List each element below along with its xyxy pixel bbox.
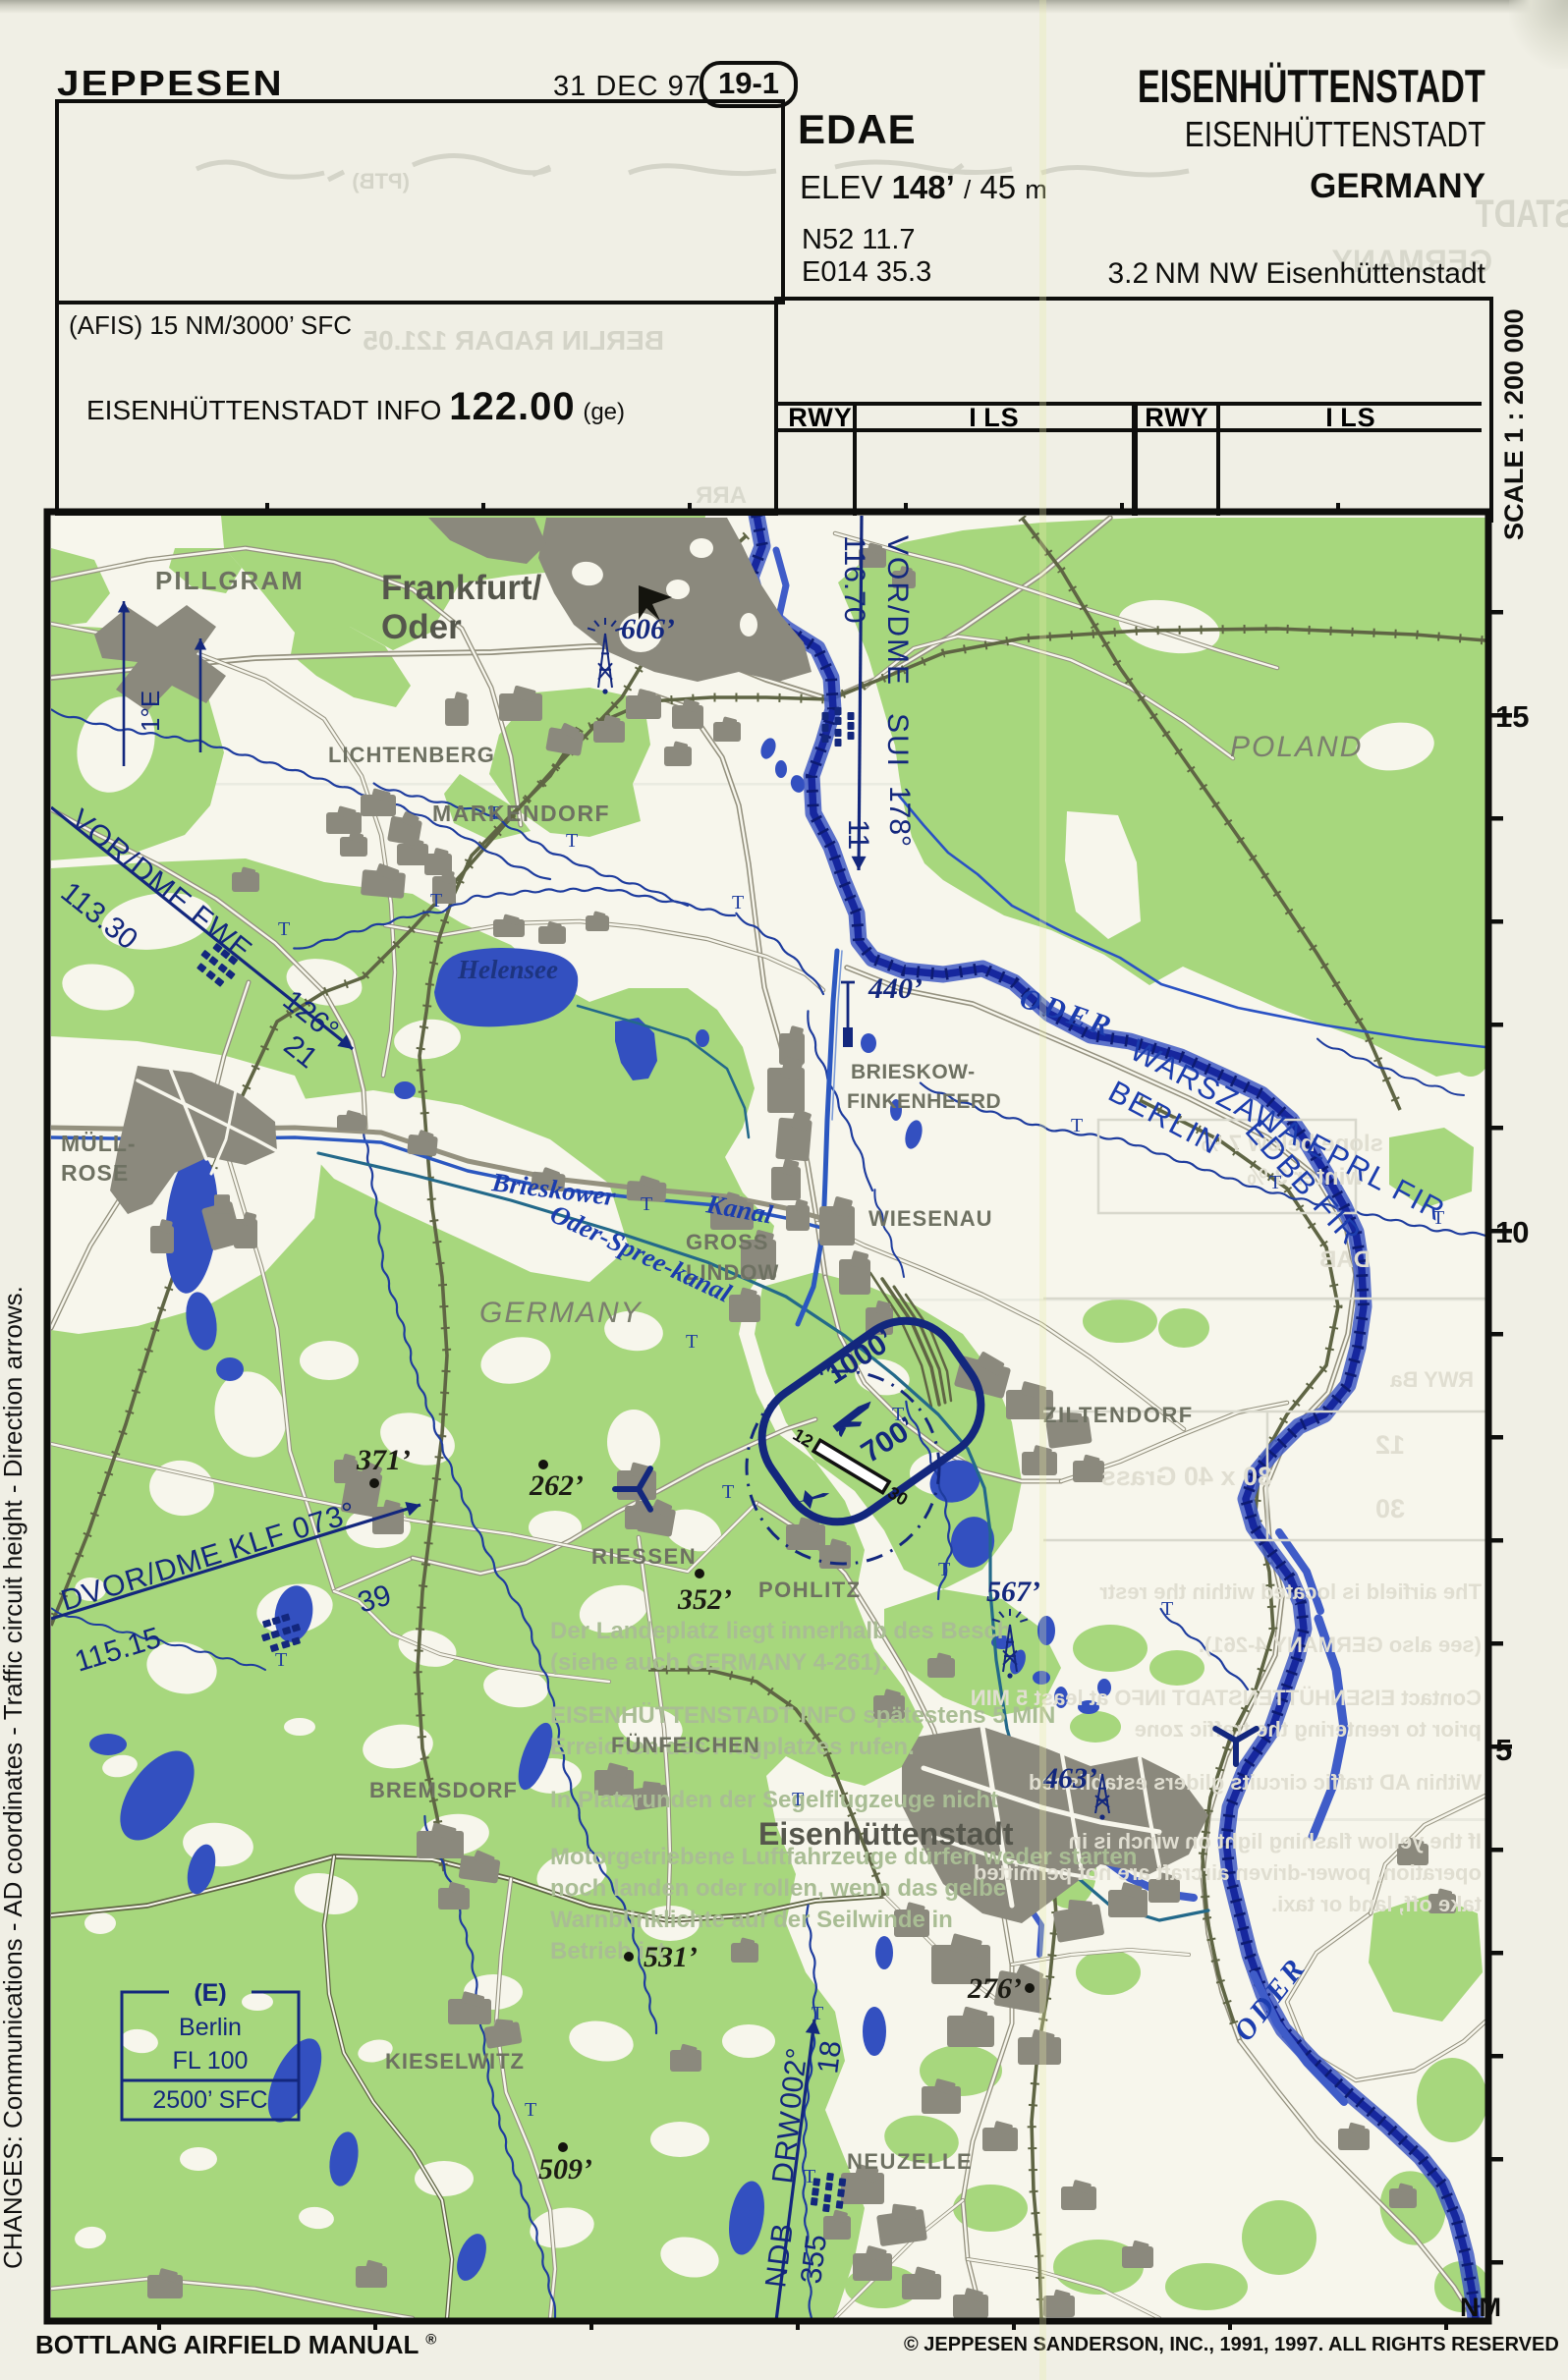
svg-text:T: T — [686, 1331, 698, 1353]
svg-text:KIESELWITZ: KIESELWITZ — [385, 2049, 525, 2074]
svg-text:T: T — [732, 892, 744, 913]
svg-text:The airfield is located within: The airfield is located within the restr — [1099, 1579, 1482, 1604]
svg-text:WIESENAU: WIESENAU — [868, 1206, 993, 1231]
svg-text:T: T — [278, 918, 290, 940]
svg-text:T: T — [792, 1789, 804, 1810]
svg-text:T: T — [430, 890, 442, 912]
svg-text:30: 30 — [1375, 1494, 1405, 1523]
svg-text:30 x 40 Grass: 30 x 40 Grass — [1101, 1462, 1272, 1491]
svg-text:276’: 276’ — [967, 1972, 1022, 2005]
svg-text:NEUZELLE: NEUZELLE — [847, 2149, 973, 2174]
svg-text:LICHTENBERG: LICHTENBERG — [328, 743, 495, 767]
svg-text:T: T — [804, 2166, 815, 2187]
svg-text:(E): (E) — [194, 1979, 226, 2007]
svg-text:noch landen oder rollen, w: noch landen oder rollen, wenn das gelbe — [550, 1875, 1006, 1902]
svg-text:116.70: 116.70 — [838, 535, 870, 624]
svg-text:606’: 606’ — [621, 613, 675, 645]
svg-text:Oder: Oder — [381, 608, 462, 646]
svg-text:(siehe auch GERMANY 4-261).: (siehe auch GERMANY 4-261). — [550, 1649, 888, 1676]
svg-text:352’: 352’ — [677, 1583, 732, 1616]
svg-text:463’: 463’ — [1042, 1762, 1097, 1795]
svg-text:GROSS: GROSS — [686, 1230, 768, 1254]
svg-text:MARKENDORF: MARKENDORF — [432, 801, 610, 826]
svg-text:BREMSDORF: BREMSDORF — [369, 1778, 518, 1802]
svg-text:371’: 371’ — [356, 1444, 411, 1476]
svg-text:VOR/DME: VOR/DME — [881, 535, 914, 687]
svg-text:567’: 567’ — [986, 1576, 1040, 1608]
svg-text:1°E: 1°E — [136, 691, 165, 732]
svg-text:Frankfurt/: Frankfurt/ — [381, 569, 542, 607]
svg-text:Warnblinklichte auf der Sei: Warnblinklichte auf der Seilwinde in — [550, 1907, 953, 1933]
svg-text:T: T — [566, 830, 578, 852]
svg-text:18: 18 — [812, 2039, 848, 2076]
svg-text:MÜLL-: MÜLL- — [61, 1131, 137, 1156]
svg-text:SUI: SUI — [881, 713, 914, 768]
svg-text:531’: 531’ — [644, 1941, 698, 1973]
svg-text:Helensee: Helensee — [457, 955, 558, 984]
svg-text:BRIESKOW-: BRIESKOW- — [851, 1061, 976, 1083]
svg-text:T: T — [812, 2003, 823, 2024]
svg-text:FINKENHEERD: FINKENHEERD — [847, 1090, 1001, 1113]
svg-text:T: T — [275, 1649, 287, 1671]
svg-text:178°: 178° — [883, 786, 916, 847]
svg-text:Berlin: Berlin — [179, 2014, 242, 2041]
svg-text:EISENHÜTTENSTADT INFO späteste: EISENHÜTTENSTADT INFO spätestens 5 MIN — [550, 1702, 1055, 1729]
svg-text:In Platzrunden der Segelflugze: In Platzrunden der Segelflugzeuge nicht — [550, 1787, 998, 1813]
svg-text:Eisenhüttenstadt: Eisenhüttenstadt — [758, 1816, 1014, 1852]
svg-text:RIESSEN: RIESSEN — [591, 1544, 697, 1569]
svg-text:509’: 509’ — [538, 2153, 592, 2186]
svg-text:T: T — [525, 2099, 536, 2121]
svg-text:Der Landeplatz liegt innerhalb: Der Landeplatz liegt innerhalb des Besch — [550, 1618, 1011, 1644]
svg-text:T: T — [1071, 1115, 1083, 1136]
svg-text:T: T — [641, 1193, 652, 1215]
svg-text:15: 15 — [1495, 699, 1529, 734]
svg-text:FÜNFEICHEN: FÜNFEICHEN — [611, 1733, 760, 1757]
svg-text:PILLGRAM: PILLGRAM — [155, 566, 305, 595]
svg-text:ROSE: ROSE — [61, 1160, 129, 1186]
svg-text:12: 12 — [1375, 1430, 1405, 1460]
svg-text:10: 10 — [1495, 1215, 1529, 1249]
svg-text:GERMANY: GERMANY — [479, 1297, 643, 1329]
svg-text:5: 5 — [1495, 1733, 1512, 1767]
svg-text:T: T — [722, 1481, 734, 1503]
svg-text:prior to reentering the traffi: prior to reentering the traffic zone — [1135, 1717, 1482, 1742]
svg-text:ZILTENDORF: ZILTENDORF — [1043, 1403, 1194, 1427]
svg-text:T: T — [938, 1559, 950, 1580]
svg-text:T: T — [1161, 1598, 1173, 1620]
svg-text:POLAND: POLAND — [1230, 731, 1363, 763]
svg-text:355: 355 — [795, 2233, 833, 2286]
svg-text:take off, land or taxi.: take off, land or taxi. — [1271, 1892, 1482, 1916]
svg-text:FL 100: FL 100 — [173, 2047, 249, 2075]
svg-text:POHLITZ: POHLITZ — [758, 1577, 862, 1602]
svg-text:T: T — [892, 1404, 904, 1425]
svg-text:11: 11 — [842, 819, 874, 850]
svg-text:262’: 262’ — [529, 1469, 584, 1502]
svg-text:RWY Ba: RWY Ba — [1389, 1367, 1474, 1392]
svg-text:2500’ SFC: 2500’ SFC — [152, 2086, 267, 2114]
svg-text:(see also GERMANY 4-261).: (see also GERMANY 4-261). — [1199, 1633, 1482, 1657]
svg-text:440’: 440’ — [868, 972, 923, 1005]
